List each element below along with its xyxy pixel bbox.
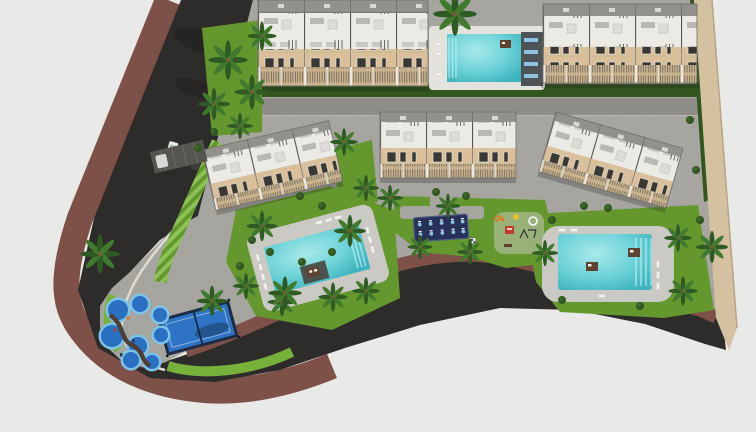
roof-band bbox=[380, 112, 516, 122]
building-shadow bbox=[541, 83, 699, 88]
palm-tree bbox=[408, 235, 433, 260]
balcony-band bbox=[258, 67, 428, 86]
palm-tree bbox=[198, 88, 230, 120]
balcony-band bbox=[380, 164, 516, 178]
palm-tree bbox=[319, 283, 348, 312]
roof-band bbox=[258, 0, 428, 13]
palm-tree bbox=[227, 113, 253, 139]
palm-tree bbox=[330, 128, 358, 156]
palm-tree bbox=[436, 194, 461, 219]
palm-tree bbox=[352, 277, 380, 305]
facade-band bbox=[543, 47, 697, 65]
play-spinner bbox=[513, 214, 519, 220]
palm-tree bbox=[248, 22, 277, 51]
palm-tree bbox=[197, 286, 227, 316]
palm-tree bbox=[696, 231, 728, 263]
terrace-band bbox=[380, 122, 516, 148]
balcony-band bbox=[543, 65, 697, 83]
aerial-site-render: Aerial 3D rendering of a residential com… bbox=[0, 0, 756, 432]
facade-band bbox=[258, 49, 428, 67]
palm-tree bbox=[334, 215, 366, 247]
palm-tree bbox=[268, 276, 301, 309]
palm-tree bbox=[235, 75, 270, 110]
palm-tree bbox=[532, 240, 558, 266]
daybed bbox=[628, 248, 640, 257]
playground bbox=[494, 212, 544, 254]
palm-tree bbox=[377, 185, 403, 211]
right-pool bbox=[542, 226, 674, 302]
roof-band bbox=[543, 4, 697, 16]
daybed bbox=[500, 40, 511, 48]
building-block-1 bbox=[256, 0, 428, 91]
palm-tree bbox=[457, 239, 483, 265]
building-block-4 bbox=[380, 112, 516, 183]
daybed bbox=[586, 262, 598, 271]
top-pool bbox=[429, 26, 545, 90]
palm-tree bbox=[664, 224, 692, 252]
palm-tree bbox=[80, 234, 119, 273]
palm-tree bbox=[247, 211, 277, 241]
building-shadow bbox=[380, 178, 516, 183]
bench bbox=[504, 244, 512, 247]
palm-tree bbox=[208, 40, 247, 79]
building-shadow bbox=[256, 86, 428, 91]
facade-band bbox=[380, 148, 516, 164]
palm-tree bbox=[233, 273, 259, 299]
terrace-band bbox=[258, 13, 428, 49]
palm-tree bbox=[669, 277, 698, 306]
terrace-band bbox=[543, 16, 697, 47]
palm-tree bbox=[353, 175, 379, 201]
building-block-2 bbox=[541, 4, 699, 88]
pool-water bbox=[558, 234, 652, 290]
